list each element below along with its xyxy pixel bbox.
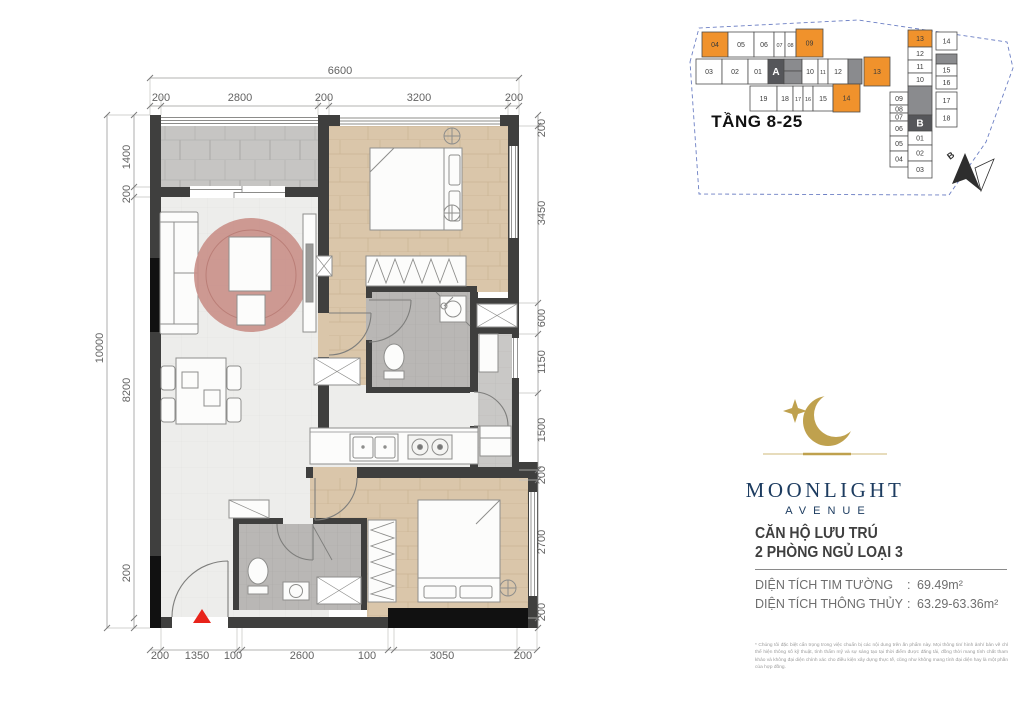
keyplan-unit-label: 15 (819, 96, 827, 103)
keyplan-unit-label: 08 (895, 107, 903, 114)
dimension-label: 200 (536, 603, 548, 621)
hall-cabinet (479, 334, 498, 372)
keyplan-unit-label: 12 (834, 69, 842, 76)
bed-2 (418, 500, 500, 602)
dimension-label: 200 (536, 119, 548, 137)
dimension-label: 1350 (185, 650, 209, 662)
toilet-1 (384, 344, 404, 379)
keyplan-unit (784, 71, 802, 84)
keyplan-unit (908, 86, 932, 115)
area-row-net: DIỆN TÍCH THÔNG THỦY : 63.29-63.36m² (755, 595, 1007, 613)
keyplan-unit-label: 14 (843, 96, 851, 103)
wardrobe-1 (366, 256, 466, 286)
divider (755, 569, 1007, 570)
dimension-label: 200 (514, 650, 532, 662)
brand-subtitle: AVENUE (733, 505, 917, 517)
keyplan-unit-label: 13 (916, 36, 924, 43)
dimension-label: 2600 (290, 650, 314, 662)
unit-title-line1: CĂN HỘ LƯU TRÚ (755, 524, 977, 543)
keyplan-unit (936, 54, 957, 64)
keyplan-unit-label: 07 (895, 115, 903, 122)
area-row-gross: DIỆN TÍCH TIM TƯỜNG : 69.49m² (755, 576, 1007, 594)
keyplan-unit-label: 13 (873, 69, 881, 76)
brand-name: MOONLIGHT (733, 478, 917, 503)
dimension-label: 200 (121, 185, 133, 203)
tv-console (303, 214, 316, 332)
dimension-label: 200 (315, 92, 333, 104)
keyplan-unit-label: 06 (895, 126, 903, 133)
crescent-moon-icon (733, 391, 917, 471)
dimension-label: 600 (536, 309, 548, 327)
colon: : (907, 576, 917, 594)
toilet-2 (248, 558, 268, 594)
area-label: DIỆN TÍCH TIM TƯỜNG (755, 576, 907, 594)
keyplan-unit-label: 17 (943, 98, 951, 105)
north-label: B (945, 149, 957, 161)
floor-range-label: TẦNG 8-25 (711, 112, 802, 131)
keyplan-unit-label: 15 (943, 68, 951, 75)
keyplan-unit-label: 07 (776, 43, 782, 49)
keyplan-unit-label: 09 (895, 96, 903, 103)
shower-box-2 (317, 577, 361, 604)
dimension-label: 3050 (430, 650, 454, 662)
washer-box (314, 358, 360, 385)
keyplan-unit-label: 01 (754, 69, 762, 76)
dimension-label: 3450 (536, 201, 548, 225)
dimension-label: 1500 (536, 418, 548, 442)
shaft-box (316, 256, 332, 276)
keyplan-unit-label: 04 (895, 157, 903, 164)
keyplan-unit-label: 16 (805, 97, 811, 103)
dimension-label: 6600 (328, 65, 352, 77)
dimension-label: 2800 (228, 92, 252, 104)
kitchen-counter (310, 428, 478, 464)
keyplan-units: 040506070809030201A101112131918171615140… (696, 29, 957, 178)
fridge (480, 426, 511, 456)
keyplan-unit (848, 59, 862, 84)
dimension-label: 100 (224, 650, 242, 662)
colon: : (907, 595, 917, 613)
keyplan-unit-label: A (772, 67, 779, 78)
floorplan-sheet: 6600200280020032002001000014002008200200… (0, 0, 1024, 724)
dimension-label: 10000 (94, 333, 106, 364)
dimension-label: 200 (151, 650, 169, 662)
dimension-label: 200 (121, 564, 133, 582)
dimension-label: 200 (505, 92, 523, 104)
dimension-label: 3200 (407, 92, 431, 104)
dimension-label: 200 (152, 92, 170, 104)
wardrobe-2 (368, 520, 396, 602)
keyplan-unit-label: 17 (795, 97, 801, 103)
floor-plan: 6600200280020032002001000014002008200200… (90, 40, 580, 680)
keyplan-unit-label: B (916, 119, 923, 130)
bed-1 (370, 148, 462, 230)
keyplan-unit-label: 04 (711, 42, 719, 49)
keyplan-unit-label: 19 (760, 96, 768, 103)
keyplan-unit-label: 08 (787, 43, 793, 49)
keyplan-unit-label: 12 (916, 51, 924, 58)
site-keyplan: 040506070809030201A101112131918171615140… (685, 15, 1020, 205)
keyplan-unit-label: 11 (916, 64, 923, 71)
keyplan-unit-label: 06 (760, 42, 768, 49)
keyplan-unit-label: 05 (895, 141, 903, 148)
sofa (160, 212, 198, 334)
keyplan-unit-label: 02 (731, 69, 739, 76)
brand-logo: MOONLIGHT AVENUE (733, 391, 917, 517)
dimension-label: 8200 (121, 378, 133, 402)
keyplan-unit-label: 14 (943, 39, 951, 46)
shelf-2 (229, 500, 269, 518)
keyplan-unit-label: 18 (943, 116, 951, 123)
dimension-label: 100 (358, 650, 376, 662)
area-value: 69.49m² (917, 576, 963, 594)
balcony-floor (161, 126, 318, 187)
unit-title-line2: 2 PHÒNG NGỦ LOẠI 3 (755, 543, 977, 562)
dimension-label: 200 (536, 466, 548, 484)
balcony-railing (161, 118, 318, 124)
keyplan-unit-label: 10 (916, 77, 924, 84)
unit-info: CĂN HỘ LƯU TRÚ 2 PHÒNG NGỦ LOẠI 3 DIỆN T… (755, 524, 1007, 613)
keyplan-unit-label: 16 (943, 80, 951, 87)
dimension-label: 1150 (536, 350, 548, 374)
keyplan-unit-label: 18 (781, 96, 789, 103)
keyplan-unit-label: 02 (916, 151, 924, 158)
keyplan-unit-label: 09 (806, 41, 814, 48)
keyplan-unit-label: 01 (916, 136, 924, 143)
keyplan-unit-label: 03 (705, 69, 713, 76)
keyplan-unit (784, 59, 802, 71)
keyplan-unit-label: 03 (916, 167, 924, 174)
stove (408, 435, 452, 459)
north-arrow-icon: B (945, 149, 994, 191)
keyplan-unit-label: 10 (806, 69, 814, 76)
disclaimer-text: * Chúng tôi đặc biệt cẩn trọng trong việ… (755, 642, 1008, 672)
keyplan-unit-label: 05 (737, 42, 745, 49)
dimension-label: 2700 (536, 530, 548, 554)
sink-2 (283, 582, 309, 600)
keyplan-unit-label: 11 (820, 70, 826, 76)
dimension-label: 1400 (121, 145, 133, 169)
area-value: 63.29-63.36m² (917, 595, 998, 613)
area-label: DIỆN TÍCH THÔNG THỦY (755, 595, 907, 613)
ac-ledge-box (477, 304, 517, 327)
